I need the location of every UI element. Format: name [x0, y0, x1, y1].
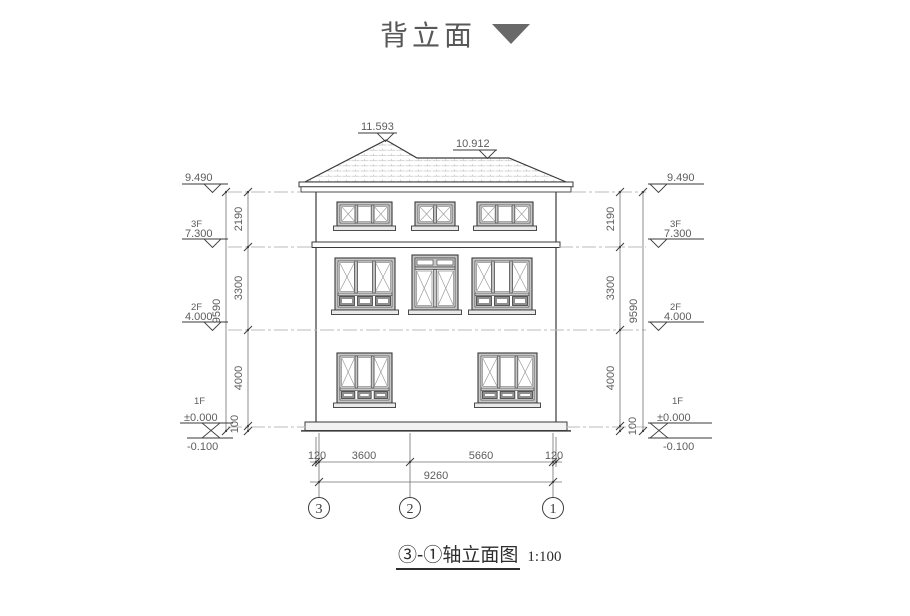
left-2f-elevation: 4.000	[185, 311, 213, 323]
window	[334, 202, 396, 231]
left-1f-label: 1F	[194, 396, 205, 407]
window	[334, 353, 396, 408]
roof-peak-elevation: 11.593	[361, 121, 394, 133]
right-2f-elevation: 4.000	[664, 311, 692, 323]
axis-2-label: 2	[407, 502, 414, 517]
dim-3300: 3300	[233, 276, 245, 300]
window	[409, 255, 462, 315]
left-vertical-dimensions: 2190 3300 4000 100 9590	[211, 207, 245, 433]
bottom-dimensions: 120 3600 5660 120 9260	[308, 450, 563, 482]
left-1f-elevation: ±0.000	[184, 412, 218, 424]
right-1f-label: 1F	[672, 396, 683, 407]
drawing-scale: 1:100	[527, 549, 561, 565]
dim-100: 100	[627, 417, 639, 435]
roof	[299, 140, 573, 192]
window	[474, 202, 537, 231]
dim-4000: 4000	[233, 366, 245, 390]
dim-120-right: 120	[545, 450, 563, 462]
window	[475, 353, 541, 408]
dim-2190: 2190	[605, 207, 617, 231]
dim-9590: 9590	[211, 299, 223, 323]
left-3f-elevation: 7.300	[185, 228, 213, 240]
window	[469, 258, 536, 315]
right-level-labels: 9.490 3F 7.300 2F 4.000 1F ±0.000 -0.100	[657, 172, 695, 453]
left-ground-elevation: -0.100	[187, 441, 218, 453]
axis-bubbles: 3 2 1	[309, 498, 564, 519]
dim-3600: 3600	[352, 450, 376, 462]
drawing-caption: ③-①轴立面图	[396, 545, 520, 570]
dim-9260: 9260	[424, 470, 448, 482]
right-1f-elevation: ±0.000	[657, 412, 691, 424]
right-eave-elevation: 9.490	[667, 172, 695, 184]
dim-9590: 9590	[628, 299, 640, 323]
right-ground-elevation: -0.100	[663, 441, 694, 453]
axis-1-label: 1	[550, 502, 557, 517]
window	[332, 258, 399, 315]
drawing-caption-row: ③-①轴立面图1:100	[396, 540, 562, 567]
right-3f-elevation: 7.300	[664, 228, 692, 240]
dim-120-left: 120	[308, 450, 326, 462]
window	[412, 202, 459, 231]
elevation-drawing: 3 2 1 11.593 10.912 9.490 3F 7.300 2F 4.…	[0, 0, 910, 616]
dim-2190: 2190	[233, 207, 245, 231]
dim-100: 100	[229, 415, 241, 433]
left-eave-elevation: 9.490	[185, 172, 213, 184]
roof-ridge-elevation: 10.912	[456, 138, 490, 150]
dim-4000: 4000	[605, 366, 617, 390]
axis-3-label: 3	[316, 502, 323, 517]
dim-3300: 3300	[605, 276, 617, 300]
elevation-sheet: 背立面	[0, 0, 910, 616]
dim-5660: 5660	[469, 450, 493, 462]
right-vertical-dimensions: 2190 3300 4000 100 9590	[605, 207, 640, 435]
